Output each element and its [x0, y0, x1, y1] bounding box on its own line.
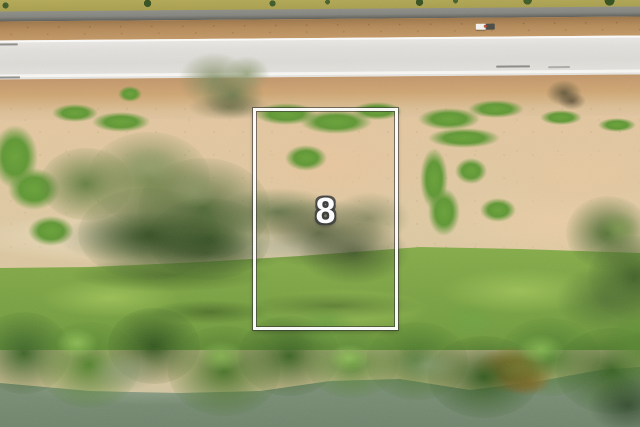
shrub: [428, 188, 460, 236]
lot-number-label: 8: [253, 190, 398, 232]
shrub: [598, 118, 636, 132]
tree-canopy-blob: [444, 302, 496, 338]
tree-canopy-highlight: [518, 334, 564, 364]
shrub: [428, 128, 500, 148]
tree-canopy-highlight: [198, 340, 244, 372]
shrub: [118, 86, 142, 102]
roadside-object: [486, 24, 495, 30]
shrub: [480, 198, 516, 222]
shrub: [92, 112, 150, 132]
road-mark: [496, 65, 530, 67]
tree-canopy-highlight: [328, 344, 370, 372]
road-mark: [548, 66, 570, 68]
aerial-photo: 8: [0, 0, 640, 427]
fallen-branch: [88, 352, 160, 392]
tree-canopy-highlight: [598, 212, 640, 244]
shrub: [540, 110, 582, 125]
tree-canopy-highlight: [56, 328, 98, 358]
road-mark: [0, 43, 18, 45]
shrub: [468, 100, 524, 118]
fallen-branch: [396, 348, 458, 382]
road-mark: [0, 76, 20, 78]
concrete-road: [0, 35, 640, 79]
roadside-marker-dot: [484, 25, 487, 28]
tree-canopy-blob: [224, 56, 270, 92]
shrub: [52, 104, 98, 122]
dry-bush: [558, 92, 586, 110]
tree-canopy-highlight: [168, 172, 220, 208]
shrub: [455, 158, 487, 184]
